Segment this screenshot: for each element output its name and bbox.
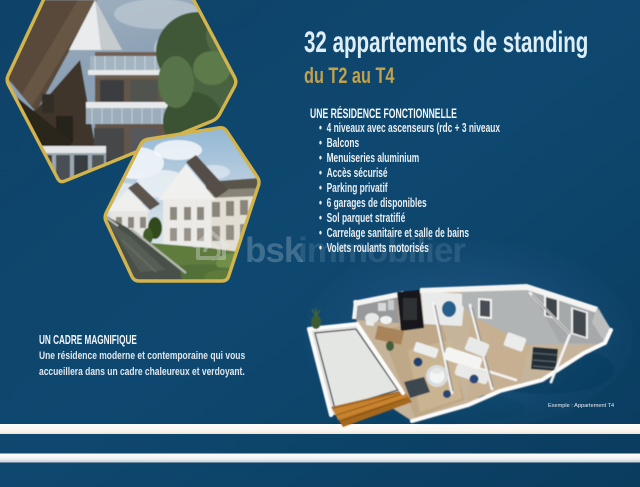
svg-text:bsk: bsk (245, 231, 304, 270)
svg-text:Exemple : Appartement T4: Exemple : Appartement T4 (548, 403, 614, 409)
